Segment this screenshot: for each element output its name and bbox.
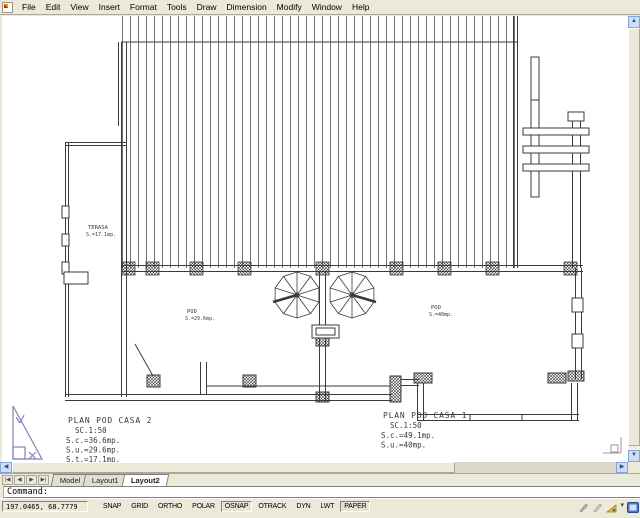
- title-block-casa1: PLAN POD CASA 1 SC.1:50 S.c.=49.1mp. S.u…: [381, 411, 467, 450]
- toggle-osnap[interactable]: OSNAP: [221, 501, 253, 512]
- right-wall: [568, 268, 584, 381]
- tab-layout1-label: Layout1: [92, 475, 119, 486]
- pod-casa2-label: POD: [187, 309, 197, 315]
- clean-screen-icon[interactable]: [627, 500, 638, 511]
- scroll-down-icon[interactable]: ▼: [628, 450, 640, 462]
- menu-help[interactable]: Help: [347, 2, 374, 12]
- casa2-scale: SC.1:50: [75, 426, 107, 435]
- pod-casa1-label: POD: [431, 305, 441, 311]
- coordinate-readout[interactable]: 197.0465, 68.7779: [2, 501, 88, 512]
- viewport-ucs-icon: [603, 437, 621, 453]
- toggle-ortho[interactable]: ORTHO: [154, 501, 186, 512]
- status-toggles: SNAP GRID ORTHO POLAR OSNAP OTRACK DYN L…: [98, 501, 371, 512]
- toggle-paper[interactable]: PAPER: [340, 501, 370, 512]
- menu-file[interactable]: File: [17, 2, 41, 12]
- menu-draw[interactable]: Draw: [192, 2, 222, 12]
- central-wall: [312, 272, 339, 402]
- tray-caret-icon[interactable]: ▾: [620, 501, 624, 509]
- menu-window[interactable]: Window: [307, 2, 347, 12]
- floor-plan-drawing: TERASA S.=17.1mp. POD S.=29.6mp. POD S.=…: [2, 16, 628, 462]
- command-line[interactable]: Command:: [0, 486, 640, 498]
- tab-layout2-label: Layout2: [131, 475, 160, 486]
- menu-format[interactable]: Format: [125, 2, 162, 12]
- tab-nav-first-icon[interactable]: |◀: [2, 475, 13, 485]
- title-block-casa2: PLAN POD CASA 2 SC.1:50 S.c.=36.6mp. S.u…: [66, 416, 152, 462]
- toggle-grid[interactable]: GRID: [127, 501, 152, 512]
- drawing-canvas[interactable]: TERASA S.=17.1mp. POD S.=29.6mp. POD S.=…: [2, 16, 628, 462]
- app-icon[interactable]: [2, 2, 13, 13]
- casa2-sc: S.c.=36.6mp.: [66, 436, 120, 445]
- horizontal-scroll-thumb[interactable]: [12, 462, 455, 473]
- annotation-icon[interactable]: [578, 500, 589, 511]
- menu-edit[interactable]: Edit: [41, 2, 66, 12]
- status-bar: 197.0465, 68.7779 SNAP GRID ORTHO POLAR …: [0, 498, 640, 513]
- status-tray: ▾: [578, 499, 638, 511]
- casa2-st: S.t.=17.1mp.: [66, 455, 120, 462]
- casa1-su: S.u.=40mp.: [381, 441, 426, 450]
- menu-bar: File Edit View Insert Format Tools Draw …: [0, 0, 640, 14]
- tab-navigation: |◀ ◀ ▶ ▶|: [2, 475, 50, 485]
- toggle-dyn[interactable]: DYN: [292, 501, 314, 512]
- menu-tools[interactable]: Tools: [162, 2, 192, 12]
- scale-sync-icon[interactable]: [606, 500, 617, 511]
- tab-model-label: Model: [60, 475, 80, 486]
- vertical-scroll-thumb[interactable]: [628, 28, 640, 446]
- bottom-walls: [65, 344, 579, 421]
- scrollbar-corner: [628, 462, 640, 473]
- pod-casa2-area: S.=29.6mp.: [185, 316, 215, 322]
- terrace-walls: [62, 142, 126, 397]
- casa1-title: PLAN POD CASA 1: [383, 411, 467, 420]
- pergola-right: [523, 57, 589, 268]
- pod-casa1-area: S.=40mp.: [429, 312, 453, 318]
- horizontal-scrollbar[interactable]: ◀ ▶: [0, 462, 628, 473]
- menu-modify[interactable]: Modify: [272, 2, 307, 12]
- spiral-stair-right: [330, 272, 376, 318]
- toggle-snap[interactable]: SNAP: [99, 501, 125, 512]
- tab-nav-next-icon[interactable]: ▶: [26, 475, 37, 485]
- vertical-scrollbar[interactable]: ▲ ▼: [628, 16, 640, 462]
- scroll-right-icon[interactable]: ▶: [616, 462, 628, 473]
- toggle-polar[interactable]: POLAR: [188, 501, 219, 512]
- command-line-grip[interactable]: [0, 486, 4, 498]
- annotation-scale-icon[interactable]: [592, 500, 603, 511]
- tab-nav-last-icon[interactable]: ▶|: [38, 475, 49, 485]
- scroll-up-icon[interactable]: ▲: [628, 16, 640, 28]
- paper-ucs-icon: [13, 406, 42, 459]
- terasa-area: S.=17.1mp.: [86, 232, 116, 238]
- casa2-title: PLAN POD CASA 2: [68, 416, 152, 425]
- menu-view[interactable]: View: [65, 2, 93, 12]
- toggle-lwt[interactable]: LWT: [317, 501, 339, 512]
- tab-nav-prev-icon[interactable]: ◀: [14, 475, 25, 485]
- spiral-stair-left: [273, 272, 319, 318]
- menu-dimension[interactable]: Dimension: [222, 2, 272, 12]
- menu-insert[interactable]: Insert: [94, 2, 125, 12]
- toggle-otrack[interactable]: OTRACK: [254, 501, 290, 512]
- casa1-scale: SC.1:50: [390, 421, 422, 430]
- layout-tab-bar: |◀ ◀ ▶ ▶| Model Layout1 Layout2: [0, 473, 640, 486]
- scroll-left-icon[interactable]: ◀: [0, 462, 12, 473]
- casa1-sc: S.c.=49.1mp.: [381, 431, 435, 440]
- terasa-label: TERASA: [88, 225, 109, 231]
- casa2-su: S.u.=29.6mp.: [66, 446, 120, 455]
- tab-layout2[interactable]: Layout2: [122, 474, 169, 486]
